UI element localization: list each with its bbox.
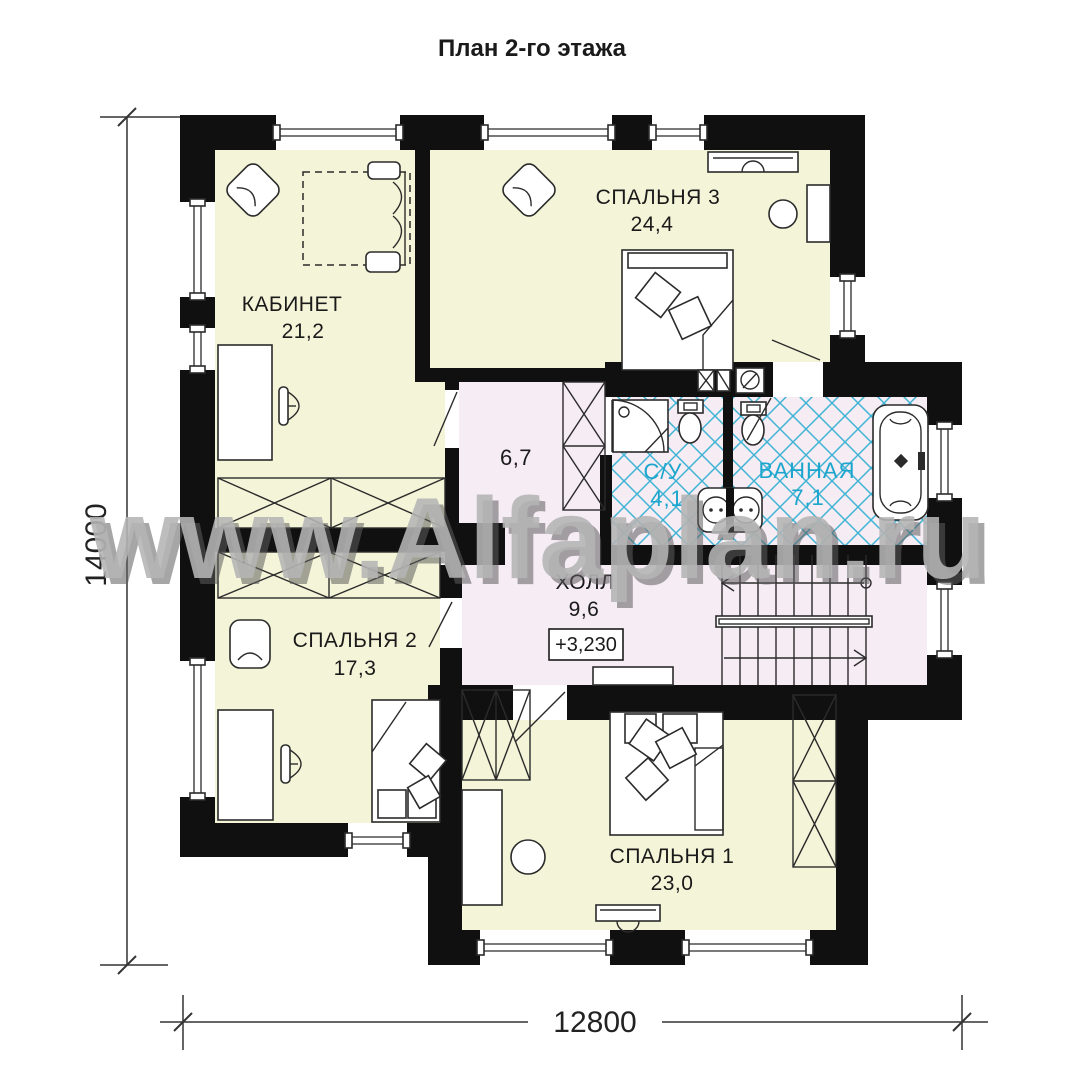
- window: [345, 823, 410, 857]
- floor-plan-page: 14000 12800 КАБИНЕТ 21,2 СПАЛЬНЯ 3 24,4 …: [0, 0, 1080, 1080]
- dresser: [708, 152, 798, 172]
- door-opening-bathroom: [773, 362, 823, 397]
- handrail: [716, 616, 872, 627]
- floor-plan-drawing: 14000 12800 КАБИНЕТ 21,2 СПАЛЬНЯ 3 24,4 …: [0, 0, 1080, 1080]
- window: [682, 930, 813, 965]
- toilet-icon: [678, 400, 703, 443]
- window: [830, 274, 865, 338]
- room-bedroom1-area: 23,0: [651, 872, 694, 895]
- page-title: План 2-го этажа: [438, 35, 627, 62]
- room-bedroom3-area: 24,4: [631, 213, 674, 236]
- dimension-width-label: 12800: [553, 1006, 636, 1039]
- bed: [372, 700, 446, 822]
- desk: [218, 345, 272, 460]
- desk: [218, 710, 273, 820]
- elevation-badge: +3,230: [549, 629, 623, 660]
- window: [180, 199, 215, 300]
- window: [273, 115, 403, 150]
- elevation-value: +3,230: [555, 634, 617, 656]
- bed: [622, 250, 733, 370]
- washing-machine-icon: [736, 368, 764, 393]
- cabinet-icon: [717, 370, 730, 391]
- armchair-icon: [230, 620, 270, 668]
- room-corridor-area: 6,7: [500, 445, 532, 470]
- watermark: www.Alfaplan.ru www.Alfaplan.ru: [89, 475, 993, 609]
- cabinet-icon: [698, 370, 714, 391]
- desk: [462, 790, 502, 905]
- side-table: [769, 200, 797, 228]
- closet: [807, 185, 830, 242]
- window: [180, 658, 215, 800]
- watermark-text: www.Alfaplan.ru: [89, 475, 987, 603]
- room-bedroom1-label: СПАЛЬНЯ 1: [610, 845, 735, 868]
- room-bedroom2-area: 17,3: [334, 657, 377, 680]
- sideboard: [593, 667, 673, 685]
- room-bedroom2-label: СПАЛЬНЯ 2: [293, 629, 418, 652]
- room-kabinet-area: 21,2: [282, 320, 325, 343]
- chair: [511, 840, 545, 874]
- window: [180, 325, 215, 373]
- room-bedroom3-label: СПАЛЬНЯ 3: [596, 186, 721, 209]
- room-kabinet-label: КАБИНЕТ: [242, 293, 343, 316]
- window: [481, 115, 615, 150]
- window: [477, 930, 613, 965]
- window: [649, 115, 707, 150]
- bed: [610, 712, 723, 835]
- bidet-icon: [741, 402, 766, 445]
